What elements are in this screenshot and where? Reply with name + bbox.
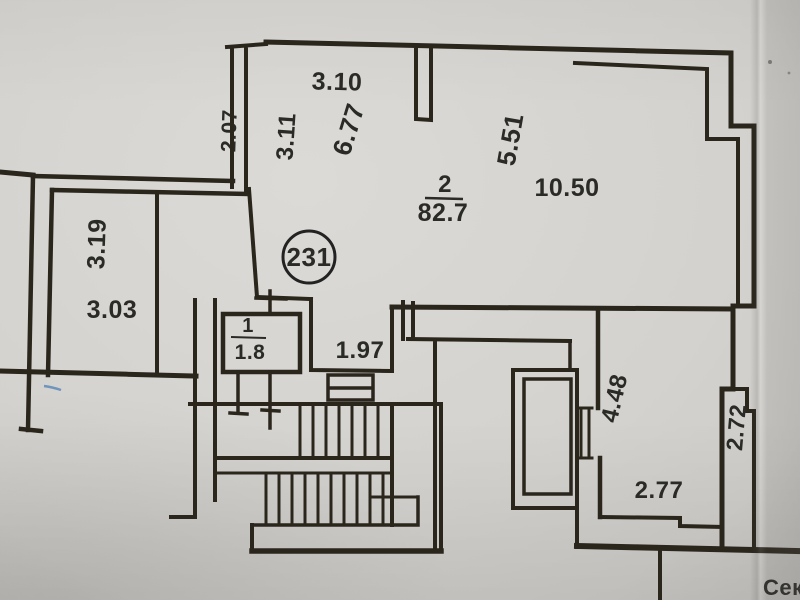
service-lobby-walls	[403, 302, 570, 549]
dim-label-room2-width: 10.50	[534, 174, 599, 202]
dust-speck	[768, 60, 772, 64]
room-2-label: 2 82.7	[418, 171, 469, 227]
dim-label-partial-left: 2.07	[217, 109, 241, 153]
elevator-door-jambs	[578, 408, 592, 458]
room-2-number: 2	[438, 171, 452, 198]
apartment-badge-number: 231	[287, 242, 332, 272]
top-wall-stub	[416, 50, 431, 120]
elevator	[513, 341, 592, 547]
dust-speck	[788, 72, 791, 75]
room2-bottom-wall	[392, 307, 733, 309]
dim-label-room2-depth: 5.51	[491, 111, 530, 168]
outer-walls	[0, 42, 754, 547]
stair-treads-upper	[300, 404, 378, 458]
dim-label-service-depth: 4.48	[596, 372, 633, 426]
elevator-shaft-inner	[524, 341, 571, 494]
dim-label-service-width: 2.77	[635, 477, 684, 504]
floor-plan-photo: 2.07	[0, 0, 800, 600]
dimension-labels: 3.10 3.11 6.77 5.51 10.50 3.19 3.03 1.97…	[82, 67, 751, 504]
lobby-left-walls	[171, 300, 215, 517]
threshold-box	[328, 375, 373, 400]
dim-label-corridor-width: 3.11	[271, 112, 301, 161]
corridor-left-lower-wall	[249, 189, 257, 297]
dim-label-right-strip-depth: 2.72	[721, 403, 751, 452]
room-1-fraction-bar	[231, 337, 266, 338]
left-outer-double-wall	[21, 176, 52, 431]
stair-upper-bounds	[190, 404, 441, 458]
dim-label-left-room-width: 3.03	[87, 296, 138, 324]
floor-plan-drawing: 2.07	[0, 0, 800, 600]
staircase	[190, 404, 441, 551]
room-1-label: 1 1.8	[231, 315, 266, 364]
room-2-area: 82.7	[418, 199, 469, 227]
service-bottom-wall	[600, 517, 722, 527]
section-label: Сек	[763, 575, 800, 600]
dim-label-left-room-depth: 3.19	[82, 218, 112, 270]
room-1-number: 1	[242, 315, 254, 337]
left-room-top-double-wall	[33, 176, 247, 194]
left-edge-wall	[0, 172, 33, 175]
service-walls	[577, 309, 798, 600]
dim-label-top-width: 3.10	[311, 67, 362, 96]
dim-label-corridor-length: 6.77	[326, 100, 370, 159]
corridor-left-double-wall	[227, 44, 266, 191]
room-1-area: 1.8	[235, 341, 266, 364]
apartment-badge: 231	[283, 231, 335, 283]
dim-label-hall-width: 1.97	[336, 337, 385, 364]
blue-pen-mark	[44, 386, 61, 390]
section-bottom-wall	[577, 546, 798, 551]
stair-treads-lower	[266, 473, 383, 525]
